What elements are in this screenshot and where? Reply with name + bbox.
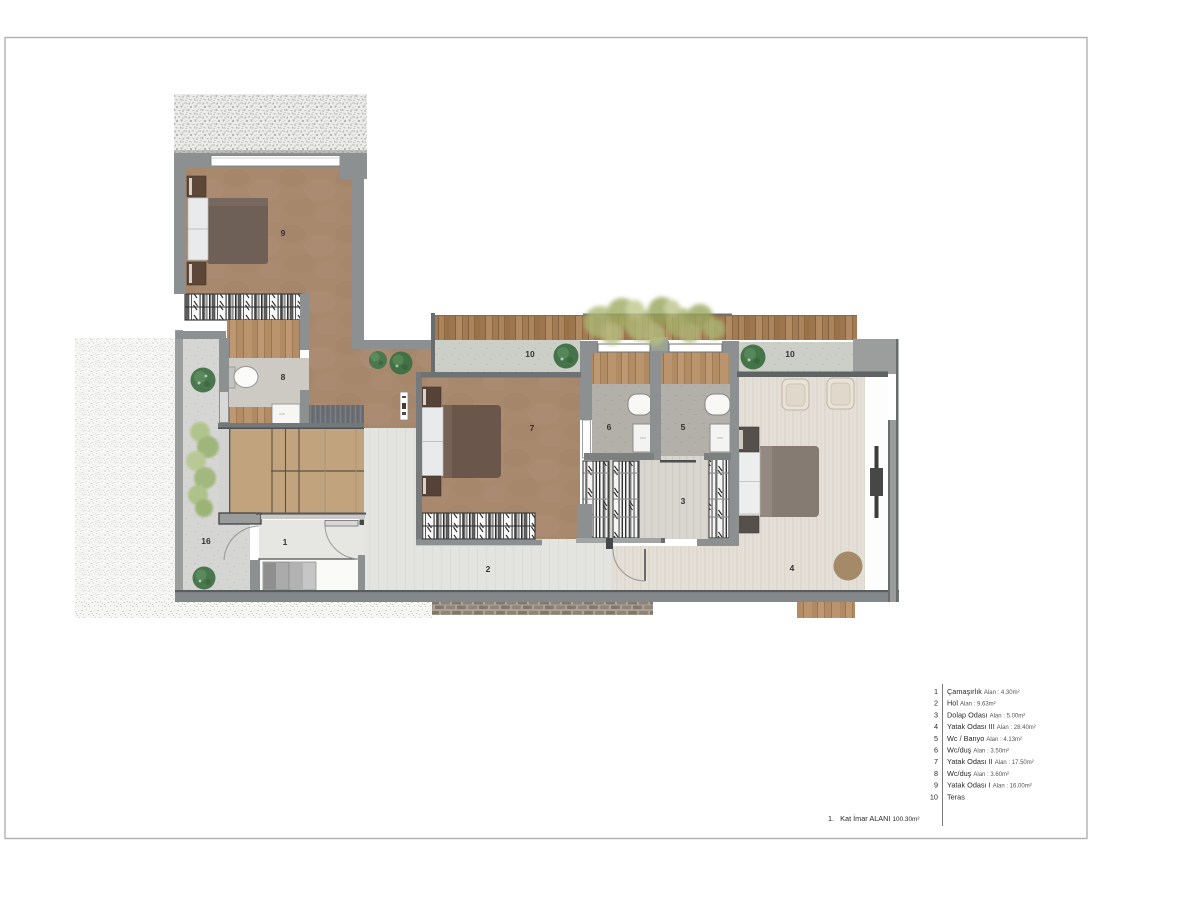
svg-text:4: 4: [790, 563, 795, 573]
svg-text:9: 9: [281, 228, 286, 238]
svg-text:10: 10: [525, 349, 535, 359]
svg-text:1: 1: [934, 687, 938, 696]
svg-text:5: 5: [681, 422, 686, 432]
svg-text:10: 10: [930, 792, 938, 801]
svg-text:5: 5: [934, 734, 938, 743]
svg-text:9: 9: [934, 781, 938, 790]
svg-text:6: 6: [607, 422, 612, 432]
svg-text:7: 7: [530, 423, 535, 433]
svg-text:Teras: Teras: [947, 792, 965, 801]
svg-text:8: 8: [281, 372, 286, 382]
svg-text:7: 7: [934, 757, 938, 766]
svg-text:2: 2: [934, 699, 938, 708]
svg-text:10: 10: [785, 349, 795, 359]
svg-text:1. Kat İmar ALANI 100.30m²: 1. Kat İmar ALANI 100.30m²: [828, 814, 919, 823]
svg-text:6: 6: [934, 746, 938, 755]
svg-text:8: 8: [934, 769, 938, 778]
svg-text:2: 2: [486, 564, 491, 574]
svg-text:1: 1: [283, 537, 288, 547]
svg-text:3: 3: [681, 496, 686, 506]
svg-text:4: 4: [934, 722, 938, 731]
svg-text:3: 3: [934, 710, 938, 719]
svg-text:16: 16: [201, 536, 211, 546]
